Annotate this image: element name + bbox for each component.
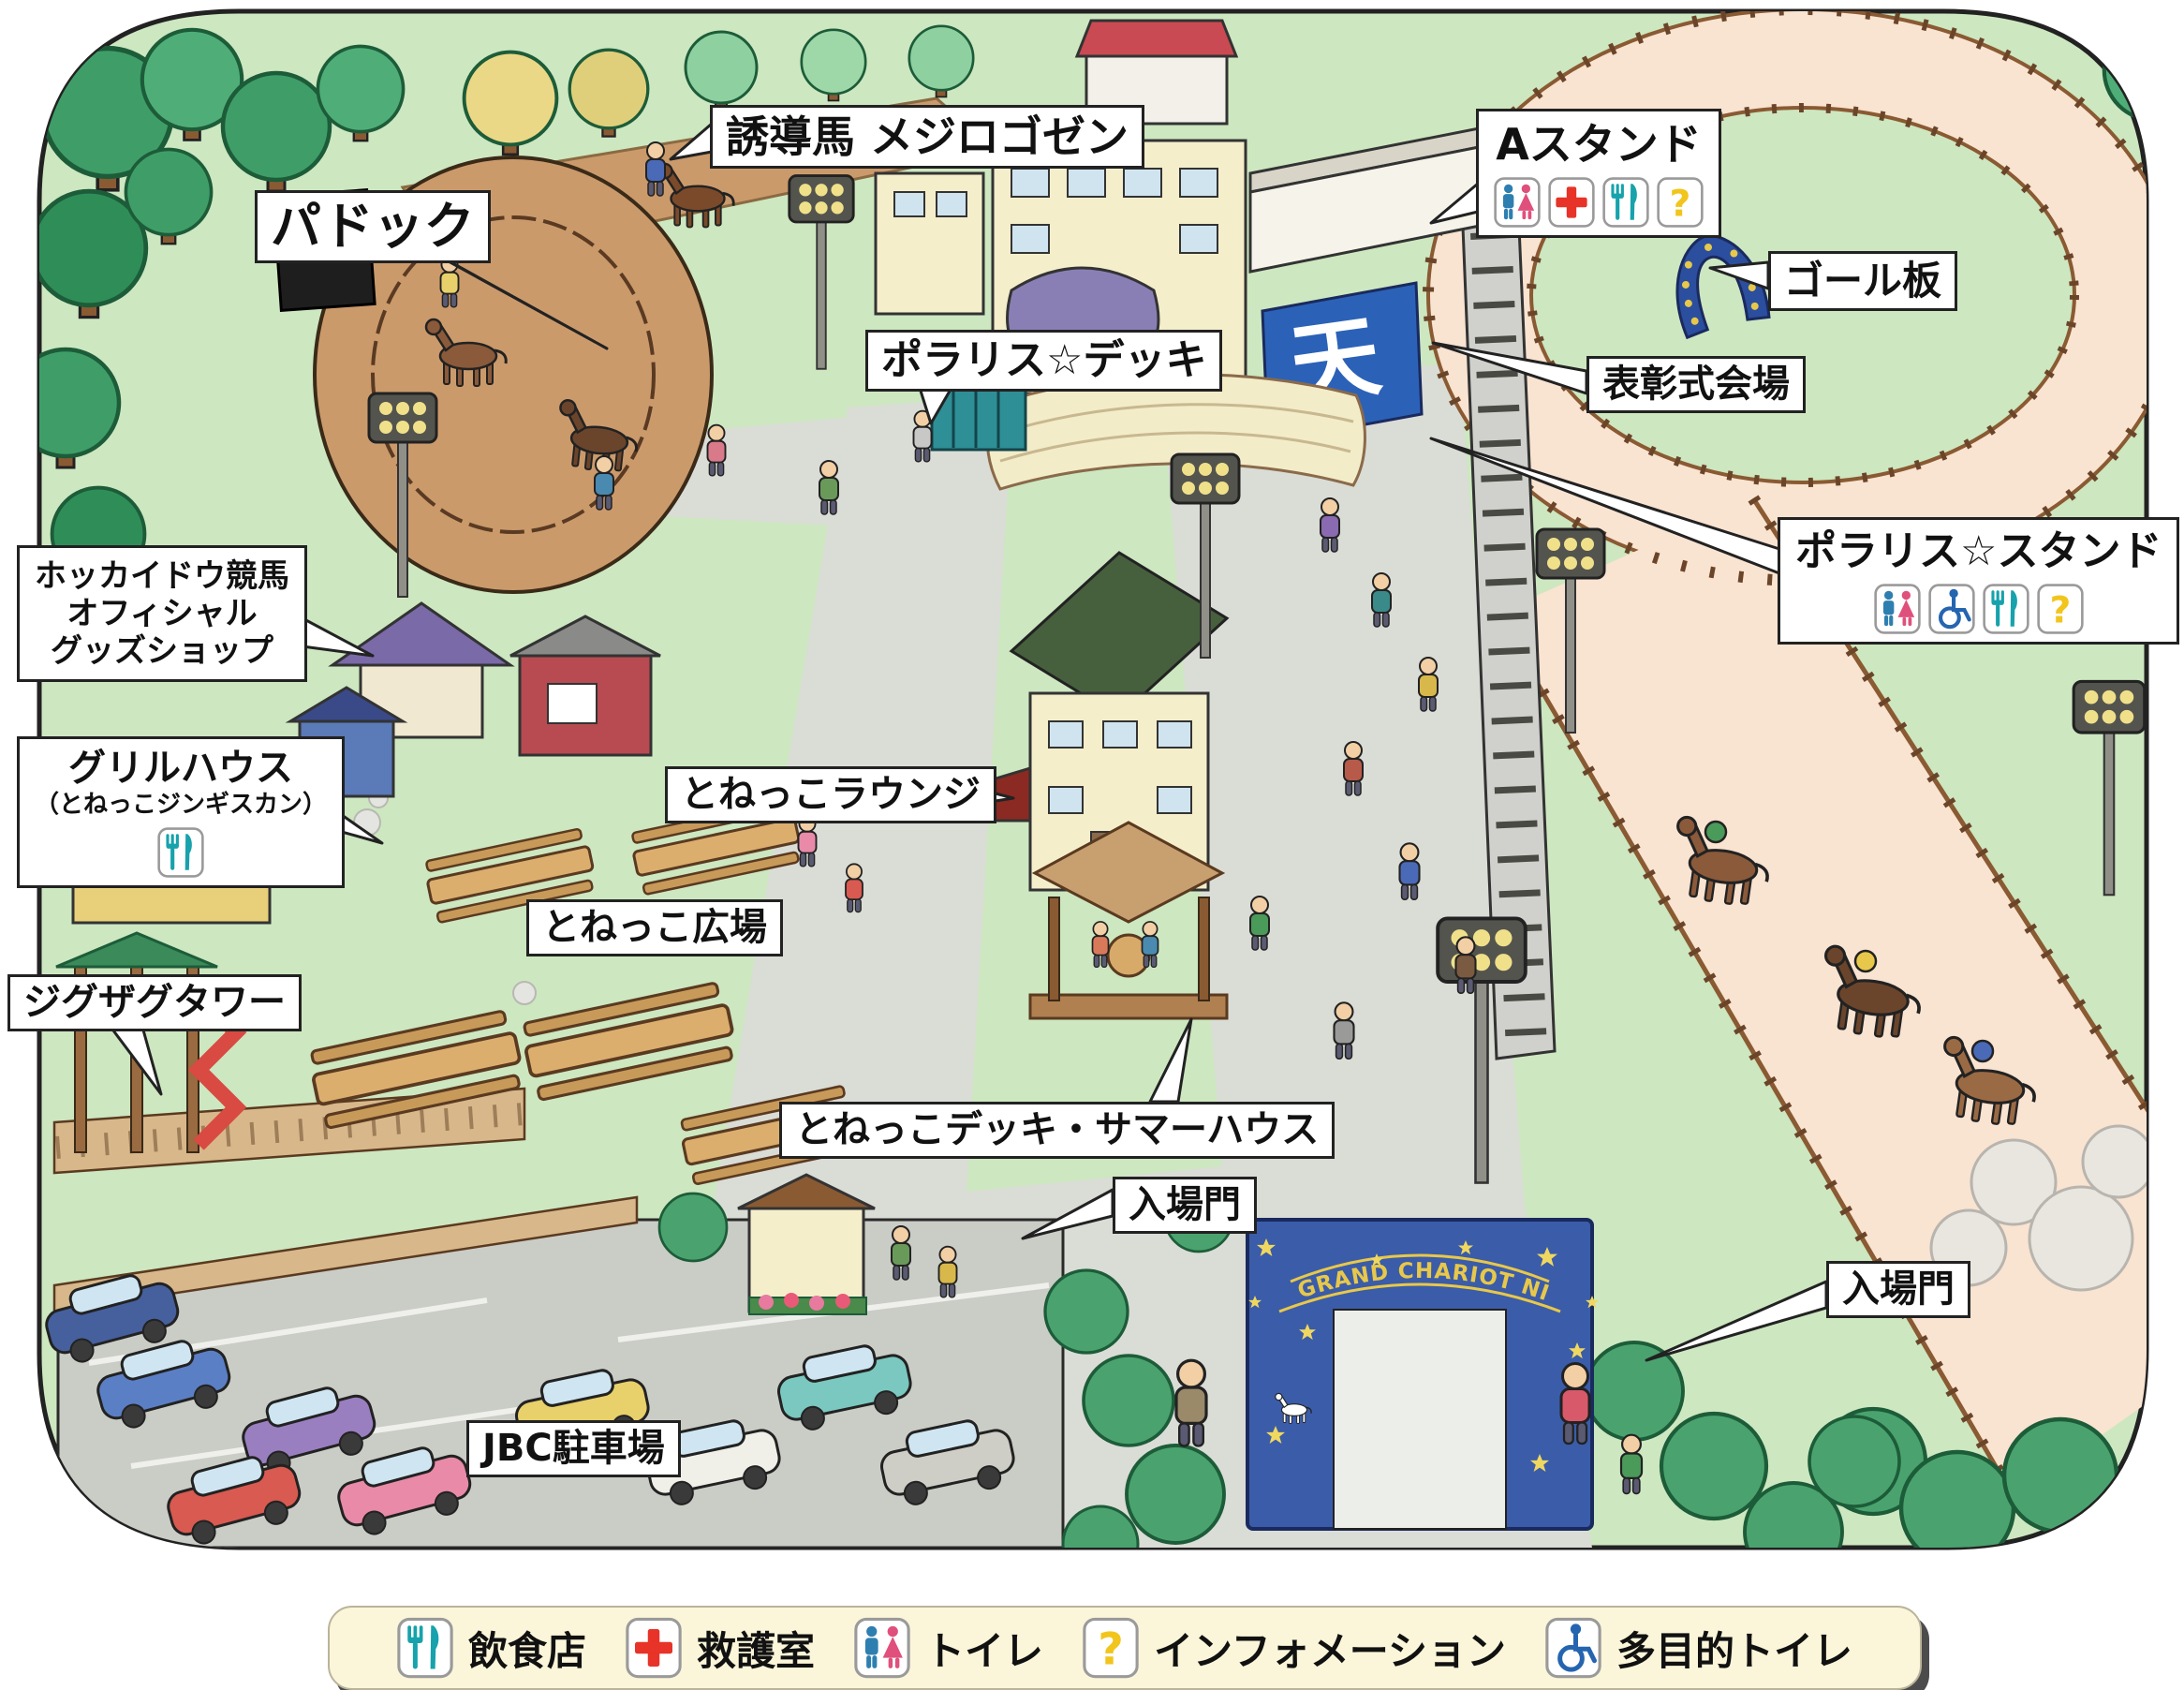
label-jbc-parking-text: JBC駐車場 xyxy=(482,1427,665,1471)
svg-text:?: ? xyxy=(1098,1624,1124,1676)
label-polaris-deck-text: ポラリス☆デッキ xyxy=(881,336,1206,385)
legend-item-toilet: トイレ xyxy=(854,1617,1043,1679)
label-goal-board: ゴール板 xyxy=(1768,251,1957,311)
svg-text:?: ? xyxy=(2049,588,2071,631)
racecourse-map: 天 xyxy=(0,0,2184,1679)
a-stand-facility-icons: ? xyxy=(1494,177,1704,228)
label-tonekko-deck-summer-house: とねっこデッキ・サマーハウス xyxy=(779,1102,1335,1159)
legend-bar: 飲食店 救護室 トイレ ?インフォメーション 多目的トイレ xyxy=(328,1606,1922,1690)
label-jbc-parking: JBC駐車場 xyxy=(466,1420,681,1477)
label-award-ceremony-text: 表彰式会場 xyxy=(1602,363,1790,407)
toilet-icon xyxy=(854,1617,910,1679)
label-guide-horse-text: 誘導馬 メジロゴゼン xyxy=(726,111,1129,162)
label-grill-house-sub: （とねっこジンギスカン） xyxy=(35,791,327,820)
label-tonekko-plaza-text: とねっこ広場 xyxy=(542,906,767,950)
label-paddock: パドック xyxy=(255,190,491,263)
accessible-toilet-icon xyxy=(1545,1617,1601,1679)
legend-item-label: インフォメーション xyxy=(1154,1620,1506,1677)
information-icon: ? xyxy=(1083,1617,1139,1679)
legend-item-label: トイレ xyxy=(925,1620,1043,1677)
label-entrance-gate-right: 入場門 xyxy=(1826,1261,1970,1318)
label-goods-shop-line1: ホッカイドウ競馬 xyxy=(35,557,289,595)
label-tonekko-lounge: とねっこラウンジ xyxy=(665,766,996,823)
label-goods-shop: ホッカイドウ競馬 オフィシャル グッズショップ xyxy=(17,545,307,682)
restaurant-icon xyxy=(1983,584,2029,634)
legend-item-restaurant: 飲食店 xyxy=(397,1617,586,1679)
label-tonekko-deck-summer-house-text: とねっこデッキ・サマーハウス xyxy=(795,1108,1319,1152)
label-entrance-gate-right-text: 入場門 xyxy=(1842,1267,1955,1312)
label-entrance-gate-left: 入場門 xyxy=(1113,1177,1257,1234)
legend-item-label: 救護室 xyxy=(697,1620,815,1677)
label-a-stand-text: Aスタンド xyxy=(1496,119,1702,170)
label-zigzag-tower-text: ジグザグタワー xyxy=(23,981,286,1025)
legend-item-information: ?インフォメーション xyxy=(1083,1617,1506,1679)
information-icon: ? xyxy=(2037,584,2084,634)
label-tonekko-lounge-text: とねっこラウンジ xyxy=(681,773,981,817)
label-polaris-deck: ポラリス☆デッキ xyxy=(865,330,1222,392)
label-goods-shop-line2: オフィシャル xyxy=(66,595,257,632)
restaurant-icon xyxy=(157,827,204,878)
label-zigzag-tower: ジグザグタワー xyxy=(7,974,302,1031)
legend-item-accessible-toilet: 多目的トイレ xyxy=(1545,1617,1852,1679)
restaurant-icon xyxy=(1602,177,1649,228)
label-polaris-stand-text: ポラリス☆スタンド xyxy=(1795,527,2162,576)
polaris-stand-facility-icons: ? xyxy=(1874,584,2084,634)
label-grill-house: グリルハウス （とねっこジンギスカン） xyxy=(17,736,345,888)
grill-house-facility-icons xyxy=(157,827,204,878)
legend-item-label: 飲食店 xyxy=(468,1620,586,1677)
label-grill-house-text: グリルハウス xyxy=(68,747,293,791)
toilet-icon xyxy=(1494,177,1541,228)
label-award-ceremony: 表彰式会場 xyxy=(1586,356,1806,413)
label-paddock-text: パドック xyxy=(271,197,475,257)
label-goal-board-text: ゴール板 xyxy=(1784,258,1941,304)
first-aid-icon xyxy=(626,1617,682,1679)
accessible-toilet-icon xyxy=(1928,584,1975,634)
label-tonekko-plaza: とねっこ広場 xyxy=(526,899,783,956)
legend-item-label: 多目的トイレ xyxy=(1616,1620,1852,1677)
toilet-icon xyxy=(1874,584,1921,634)
label-a-stand: Aスタンド ? xyxy=(1476,109,1721,238)
label-guide-horse: 誘導馬 メジロゴゼン xyxy=(710,105,1144,169)
label-polaris-stand: ポラリス☆スタンド ? xyxy=(1778,517,2179,645)
restaurant-icon xyxy=(397,1617,453,1679)
first-aid-icon xyxy=(1548,177,1595,228)
svg-text:?: ? xyxy=(1670,183,1691,226)
legend-item-first-aid: 救護室 xyxy=(626,1617,815,1679)
label-goods-shop-line3: グッズショップ xyxy=(51,632,273,670)
label-entrance-gate-left-text: 入場門 xyxy=(1129,1183,1241,1227)
information-icon: ? xyxy=(1657,177,1704,228)
